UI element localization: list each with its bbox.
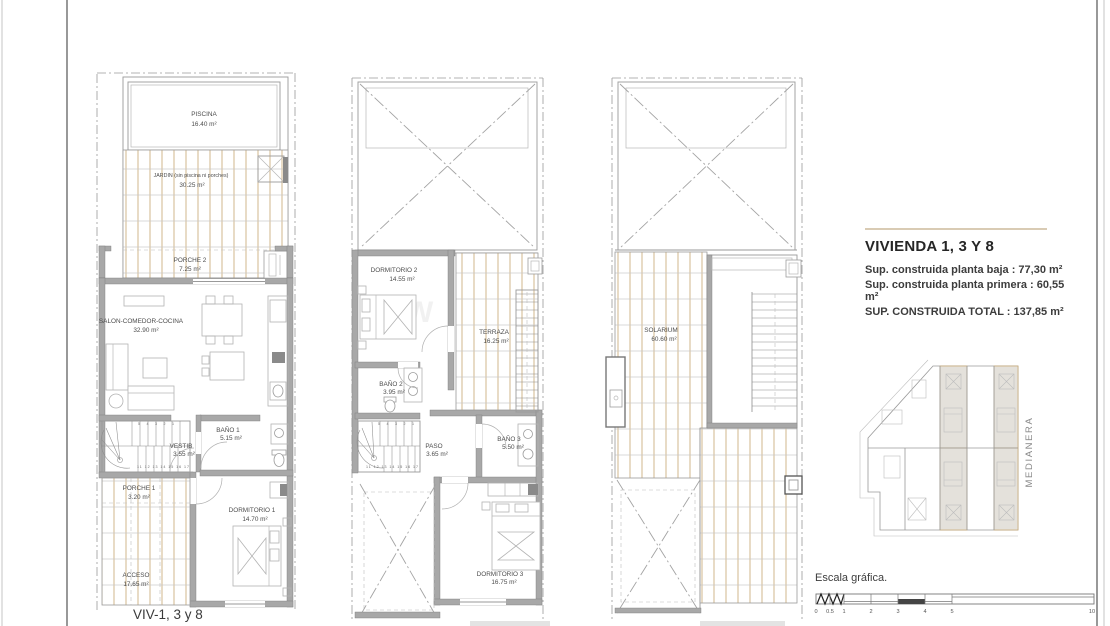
scale-tick-0: 0: [814, 609, 817, 615]
room-piscina-area: 16.40 m²: [191, 121, 216, 128]
room-terraza-name: TERRAZA: [479, 329, 510, 336]
room-solarium-area: 60.60 m²: [651, 336, 676, 343]
bed-dormitorio3: [482, 502, 540, 570]
key-plan: MEDIANERA: [860, 360, 1035, 536]
room-vestibulo-area: 3.55 m²: [173, 451, 195, 458]
room-paso-name: PASO: [425, 443, 442, 450]
first-floor-plan: 5 4 3 2 1 11 12 13 14 15 16 17: [352, 78, 550, 626]
unit-info-block: VIVIENDA 1, 3 Y 8 Sup. construida planta…: [865, 228, 1065, 321]
room-dormitorio1-area: 14.70 m²: [242, 516, 267, 523]
info-line-planta-primera: Sup. construida planta primera : 60,55 m…: [865, 279, 1065, 303]
scale-bar-ticks: 0 0.5 1 2 3 4 5 10: [814, 609, 1095, 615]
room-dormitorio2-area: 14.55 m²: [389, 276, 414, 283]
staircase-first: 5 4 3 2 1 11 12 13 14 15 16 17: [357, 421, 420, 472]
solarium-drain: [785, 476, 802, 494]
stair-numbers-bottom-first: 11 12 13 14 15 16 17: [366, 465, 418, 469]
room-dormitorio3-name: DORMITORIO 3: [477, 571, 524, 578]
unit-title: VIVIENDA 1, 3 Y 8: [865, 238, 1065, 255]
medianera-label: MEDIANERA: [1024, 417, 1035, 488]
room-dormitorio2-name: DORMITORIO 2: [371, 267, 418, 274]
stair-numbers-bottom: 11 12 13 14 15 16 17: [137, 465, 189, 469]
kitchen-counter: [268, 296, 288, 406]
scale-tick-1: 1: [842, 609, 845, 615]
room-porche1-name: PORCHE 1: [123, 485, 156, 492]
room-bano3-name: BAÑO 3: [497, 434, 521, 443]
room-bano1-area: 5.15 m²: [220, 435, 242, 442]
scale-bar-label: Escala gráfica.: [815, 572, 887, 584]
solarium-hatch-bottom: [700, 428, 797, 603]
info-line-total: SUP. CONSTRUIDA TOTAL : 137,85 m²: [865, 306, 1065, 318]
room-vestibulo-name: VESTIB: [170, 443, 193, 450]
stair-numbers-top-first: 5 4 3 2 1: [378, 422, 414, 426]
terrace-drain: [528, 258, 542, 274]
roof-plan: SOLARIUM 60.60 m²: [606, 78, 802, 626]
bed-dormitorio2: [358, 286, 416, 349]
room-dormitorio1-name: DORMITORIO 1: [229, 507, 276, 514]
room-porche2-area: 7.25 m²: [179, 266, 201, 273]
room-bano3-area: 5.50 m²: [502, 444, 524, 451]
room-porche2-name: PORCHE 2: [174, 257, 207, 264]
room-acceso-name: ACCESO: [123, 572, 150, 579]
stair-enclosure-roof: [707, 255, 801, 428]
room-solarium-name: SOLARIUM: [644, 327, 677, 334]
room-porche1-area: 3.20 m²: [128, 494, 150, 501]
void-over-acceso: [355, 484, 440, 618]
info-accent-rule: [865, 228, 1047, 230]
scale-tick-5: 5: [950, 609, 953, 615]
solarium-hatch-left: [615, 252, 707, 478]
laundry-closet: [264, 251, 287, 279]
room-bano1-name: BAÑO 1: [216, 425, 240, 434]
scale-tick-10: 10: [1089, 609, 1095, 615]
void-roof-top: [618, 82, 795, 250]
living-room-furniture: [106, 296, 244, 410]
room-bano2-name: BAÑO 2: [379, 379, 403, 388]
info-line-planta-baja: Sup. construida planta baja : 77,30 m²: [865, 264, 1065, 276]
room-piscina-name: PISCINA: [191, 111, 217, 118]
room-jardin-name: JARDIN (sin piscina ni porches): [154, 173, 229, 179]
room-terraza-area: 16.25 m²: [483, 338, 508, 345]
room-salon-area: 32.90 m²: [133, 327, 158, 334]
room-jardin-area: 30.25 m²: [179, 182, 204, 189]
bed-dormitorio1: [233, 482, 291, 596]
scale-tick-05: 0.5: [826, 609, 834, 615]
room-paso-area: 3.65 m²: [426, 451, 448, 458]
stair-numbers-top: 5 4 3 2 1: [138, 422, 174, 426]
scale-bar: Escala gráfica. 0 0.5 1 2 3 4 5 10: [814, 572, 1095, 615]
closet-dormitorio3: [488, 483, 538, 496]
drawing-sheet: W W: [0, 0, 1110, 626]
bath1-fixtures: [271, 424, 288, 467]
scale-tick-3: 3: [896, 609, 899, 615]
void-over-garden: [358, 82, 537, 250]
balcony-left: [606, 357, 625, 427]
room-acceso-area: 17.65 m²: [123, 581, 148, 588]
room-bano2-area: 3.95 m²: [383, 389, 405, 396]
room-salon-name: SALON-COMEDOR-COCINA: [99, 318, 184, 325]
cut-caption-roof: [700, 621, 785, 626]
cut-caption-first: [470, 621, 550, 626]
scale-tick-4: 4: [923, 609, 926, 615]
room-dormitorio3-area: 16.75 m²: [491, 579, 516, 586]
ground-plan-caption: VIV-1, 3 y 8: [133, 607, 203, 622]
scale-bar-body: [816, 594, 1094, 604]
ground-floor-plan: 5 4 3 2 1 11 12 13 14 15 16 17: [97, 73, 295, 622]
scale-tick-2: 2: [869, 609, 872, 615]
